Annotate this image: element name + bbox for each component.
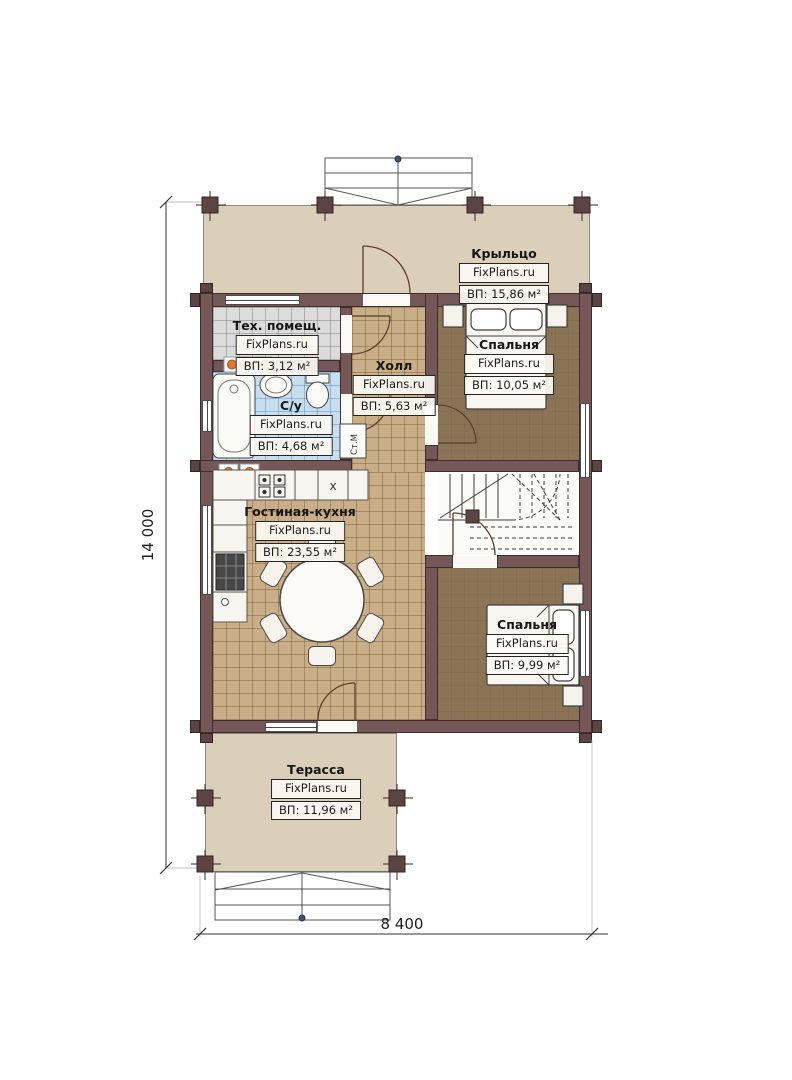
room-area: ВП: 4,68 м² [250,437,333,457]
window-bathroom [202,400,212,432]
room-label-bedroom-bottom: Спальня FixPlans.ru ВП: 9,99 м² [486,617,569,675]
door-gap-tech [341,315,352,353]
room-area: ВП: 10,05 м² [464,376,554,396]
log-stub [190,720,200,733]
label-boxes: FixPlans.ru ВП: 10,05 м² [464,354,554,395]
room-area: ВП: 23,55 м² [255,543,345,563]
brand-watermark: FixPlans.ru [464,354,554,374]
room-label-bathroom: С/у FixPlans.ru ВП: 4,68 м² [250,398,333,456]
label-boxes: FixPlans.ru ВП: 5,63 м² [353,375,436,416]
door-gap-entrance [363,294,410,306]
room-name: Терасса [287,762,345,777]
room-name: Спальня [479,337,539,352]
brand-watermark: FixPlans.ru [486,634,569,654]
brand-watermark: FixPlans.ru [459,263,549,283]
door-gap-terrace [318,721,357,732]
door-gap-bedroom-bottom [453,556,497,567]
label-boxes: FixPlans.ru ВП: 15,86 м² [459,263,549,304]
log-stub [200,733,213,743]
dimension-width-label: 8 400 [381,915,424,933]
window-living-south [265,722,317,732]
room-label-hall: Холл FixPlans.ru ВП: 5,63 м² [353,358,436,416]
room-area: ВП: 15,86 м² [459,285,549,305]
room-area: ВП: 11,96 м² [271,801,361,821]
room-name: Спальня [497,617,557,632]
room-label-porch: Крыльцо FixPlans.ru ВП: 15,86 м² [459,246,549,304]
log-stub [579,283,592,293]
window-living-west [202,505,212,595]
wall-hall-bedroom-lower [425,445,438,460]
window-bedroom-top-east [580,403,590,478]
dimension-height-label: 14 000 [139,509,157,562]
wall-bottom [200,720,592,733]
label-boxes: FixPlans.ru ВП: 23,55 м² [255,521,345,562]
window-bedroom-bottom [580,610,590,677]
room-label-terrace: Терасса FixPlans.ru ВП: 11,96 м² [271,762,361,820]
label-boxes: FixPlans.ru ВП: 3,12 м² [236,335,319,376]
log-stub [579,733,592,743]
wall-mid-right [425,460,579,472]
room-label-bedroom-top: Спальня FixPlans.ru ВП: 10,05 м² [464,337,554,395]
log-stub [190,460,200,472]
room-area: ВП: 3,12 м² [236,357,319,377]
room-name: Тех. помещ. [233,318,322,333]
room-area: ВП: 5,63 м² [353,397,436,417]
window-tech [225,295,300,305]
floor-staircase [438,472,579,555]
log-stub [592,720,602,733]
label-boxes: FixPlans.ru ВП: 9,99 м² [486,634,569,675]
wall-mid-left [200,460,352,472]
door-gap-bathroom [341,394,352,432]
room-name: С/у [280,398,302,413]
brand-watermark: FixPlans.ru [271,779,361,799]
log-stub [592,460,602,472]
room-name: Крыльцо [471,246,536,261]
floor-plan: 14 000 8 400 [0,0,792,1080]
room-label-living-kitchen: Гостиная-кухня FixPlans.ru ВП: 23,55 м² [244,504,356,562]
entrance-steps [325,156,472,205]
room-name: Холл [376,358,413,373]
brand-watermark: FixPlans.ru [250,415,333,435]
terrace-steps [215,872,390,921]
room-name: Гостиная-кухня [244,504,356,519]
room-label-tech: Тех. помещ. FixPlans.ru ВП: 3,12 м² [233,318,322,376]
wall-stairs-bedroom-right [497,555,579,568]
label-boxes: FixPlans.ru ВП: 4,68 м² [250,415,333,456]
brand-watermark: FixPlans.ru [255,521,345,541]
log-stub [190,293,200,307]
log-stub [592,293,602,307]
brand-watermark: FixPlans.ru [353,375,436,395]
label-boxes: FixPlans.ru ВП: 11,96 м² [271,779,361,820]
wall-stairs-bedroom-left [425,555,453,568]
wall-living-bedroom [425,555,438,720]
room-area: ВП: 9,99 м² [486,656,569,676]
brand-watermark: FixPlans.ru [236,335,319,355]
log-stub [200,283,213,293]
